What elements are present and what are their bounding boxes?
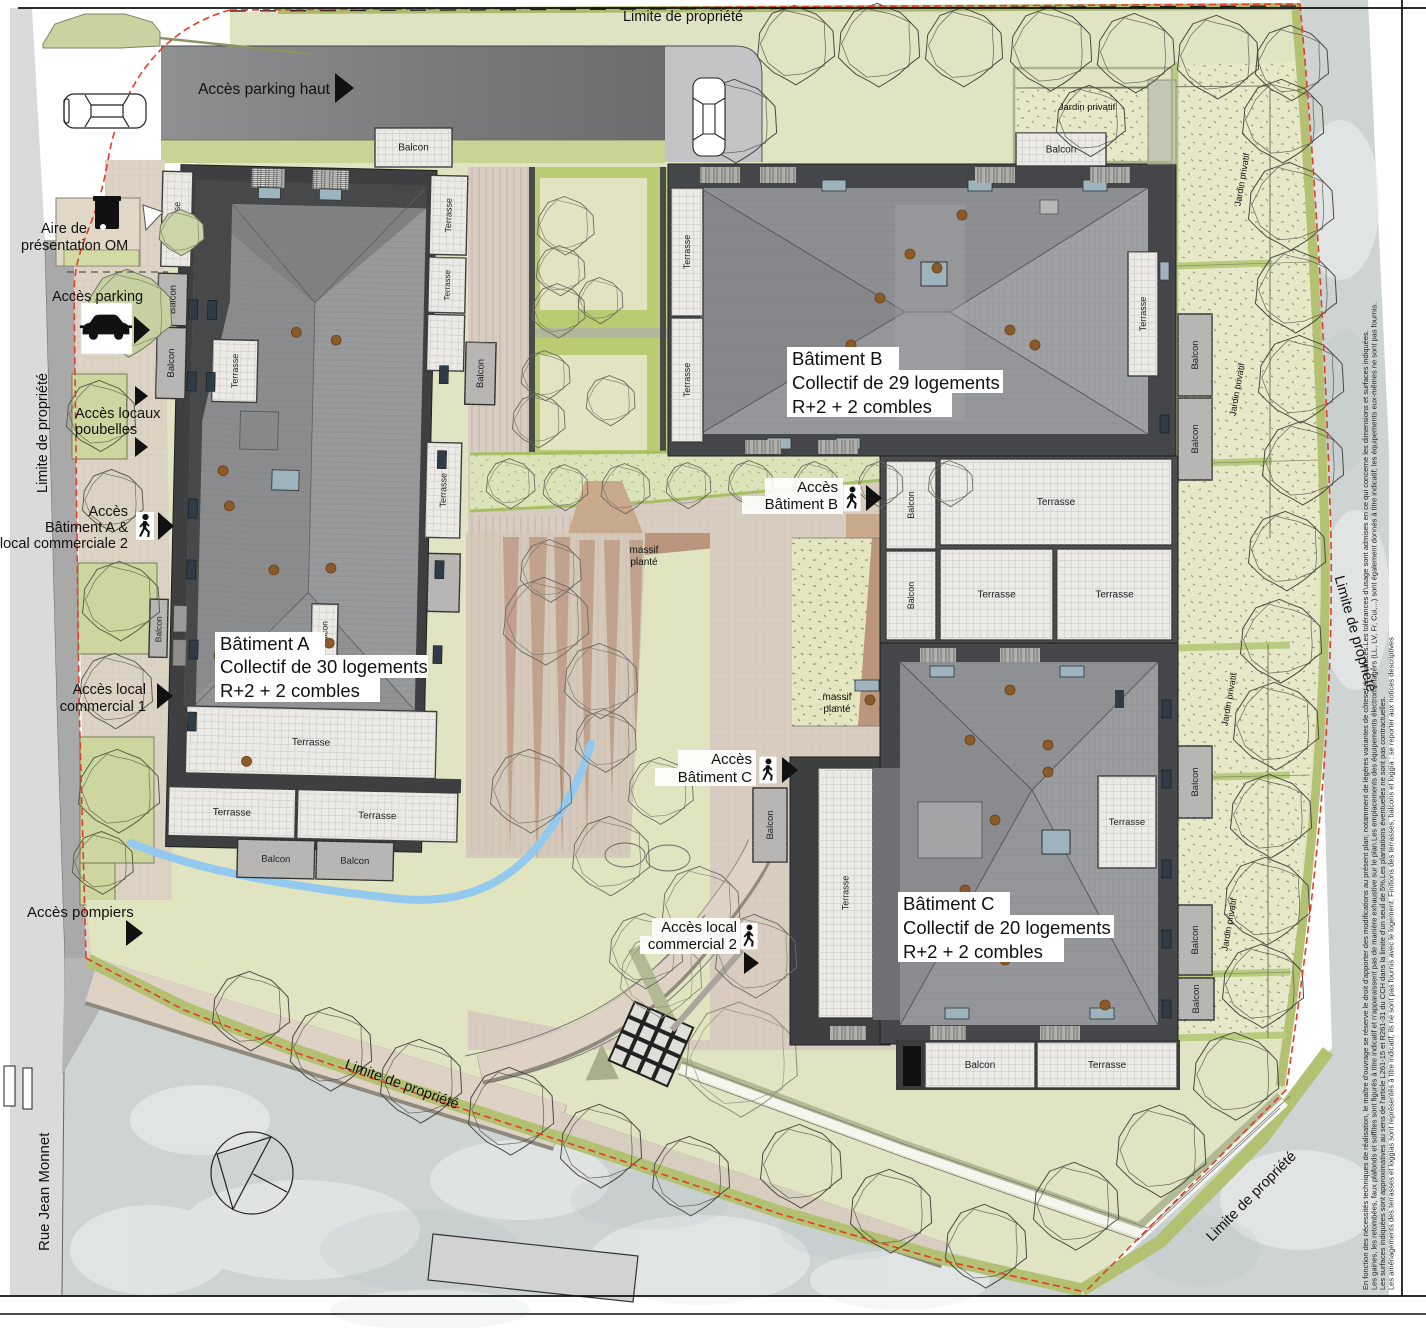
svg-text:commercial 1: commercial 1	[60, 699, 146, 715]
svg-text:Terrasse: Terrasse	[1088, 1060, 1127, 1071]
svg-text:Terrasse: Terrasse	[1109, 817, 1145, 828]
svg-text:Collectif de 29 logements: Collectif de 29 logements	[792, 372, 1000, 393]
svg-text:Jardin privatif: Jardin privatif	[1059, 102, 1116, 113]
svg-text:Balcon: Balcon	[1190, 340, 1201, 369]
svg-text:Accès: Accès	[797, 479, 838, 496]
svg-text:Terrasse: Terrasse	[229, 354, 240, 389]
svg-text:Terrasse: Terrasse	[682, 235, 692, 270]
svg-text:Balcon: Balcon	[153, 616, 164, 642]
svg-text:local commerciale 2: local commerciale 2	[0, 536, 128, 552]
svg-text:Bâtiment C: Bâtiment C	[678, 769, 752, 786]
svg-text:poubelles: poubelles	[75, 422, 137, 438]
svg-text:R+2 + 2 combles: R+2 + 2 combles	[903, 941, 1043, 962]
svg-text:Balcon: Balcon	[261, 854, 290, 866]
svg-text:Collectif de 20 logements: Collectif de 20 logements	[903, 917, 1111, 938]
svg-text:Balcon: Balcon	[765, 810, 776, 839]
svg-text:R+2 + 2 combles: R+2 + 2 combles	[220, 680, 360, 701]
svg-text:Terrasse: Terrasse	[358, 810, 397, 822]
svg-text:Bâtiment C: Bâtiment C	[903, 893, 995, 914]
svg-text:Terrasse: Terrasse	[841, 876, 851, 911]
svg-text:Terrasse: Terrasse	[213, 807, 252, 819]
svg-text:Terrasse: Terrasse	[292, 737, 331, 749]
svg-text:Terrasse: Terrasse	[977, 590, 1016, 601]
svg-text:Accès local: Accès local	[661, 919, 737, 936]
svg-text:Balcon: Balcon	[398, 143, 429, 154]
svg-text:Bâtiment A: Bâtiment A	[220, 633, 310, 654]
svg-text:Accès locaux: Accès locaux	[75, 406, 161, 422]
svg-text:Bâtiment B: Bâtiment B	[792, 348, 883, 369]
svg-text:Les aménagements des terrasses: Les aménagements des terrasses et loggia…	[1387, 637, 1396, 1290]
svg-text:Balcon: Balcon	[166, 348, 178, 377]
svg-text:Balcon: Balcon	[965, 1060, 996, 1071]
svg-text:Balcon: Balcon	[1190, 424, 1201, 453]
svg-text:Collectif de 30 logements: Collectif de 30 logements	[220, 656, 428, 677]
svg-text:Bâtiment A &: Bâtiment A &	[45, 520, 128, 536]
svg-text:Terrasse: Terrasse	[438, 473, 449, 508]
svg-text:Terrasse: Terrasse	[443, 198, 454, 233]
svg-text:commercial 2: commercial 2	[648, 936, 737, 953]
svg-text:Balcon: Balcon	[1190, 767, 1201, 796]
svg-text:R+2 + 2 combles: R+2 + 2 combles	[792, 396, 932, 417]
svg-text:Accès parking: Accès parking	[52, 289, 143, 305]
svg-text:massif: massif	[630, 545, 659, 556]
svg-text:présentation OM: présentation OM	[21, 238, 128, 254]
svg-text:Limite de propriété: Limite de propriété	[35, 373, 51, 493]
svg-text:Balcon: Balcon	[475, 359, 487, 388]
svg-text:planté: planté	[823, 704, 851, 715]
svg-text:Accès parking haut: Accès parking haut	[198, 81, 331, 98]
svg-text:Aire de: Aire de	[41, 221, 87, 237]
svg-text:Balcon: Balcon	[1191, 984, 1202, 1013]
svg-text:Bâtiment B: Bâtiment B	[765, 496, 838, 513]
svg-text:massif: massif	[823, 692, 852, 703]
svg-text:Limite de propriété: Limite de propriété	[623, 9, 743, 25]
svg-text:Balcon: Balcon	[340, 855, 369, 867]
svg-text:Rue Jean Monnet: Rue Jean Monnet	[36, 1132, 53, 1251]
svg-text:Balcon: Balcon	[906, 582, 916, 610]
svg-text:Accès local: Accès local	[73, 682, 146, 698]
svg-text:Accès pompiers: Accès pompiers	[27, 904, 134, 921]
svg-text:planté: planté	[630, 557, 658, 568]
svg-text:Accès: Accès	[89, 504, 129, 520]
svg-text:Balcon: Balcon	[906, 491, 916, 519]
svg-text:Terrasse: Terrasse	[682, 363, 692, 398]
svg-text:Terrasse: Terrasse	[1095, 590, 1134, 601]
svg-text:Terrasse: Terrasse	[1138, 297, 1148, 332]
svg-text:Terrasse: Terrasse	[443, 269, 453, 300]
svg-text:Balcon: Balcon	[1190, 925, 1201, 954]
svg-text:Terrasse: Terrasse	[1037, 497, 1076, 508]
svg-text:Accès: Accès	[711, 751, 752, 768]
